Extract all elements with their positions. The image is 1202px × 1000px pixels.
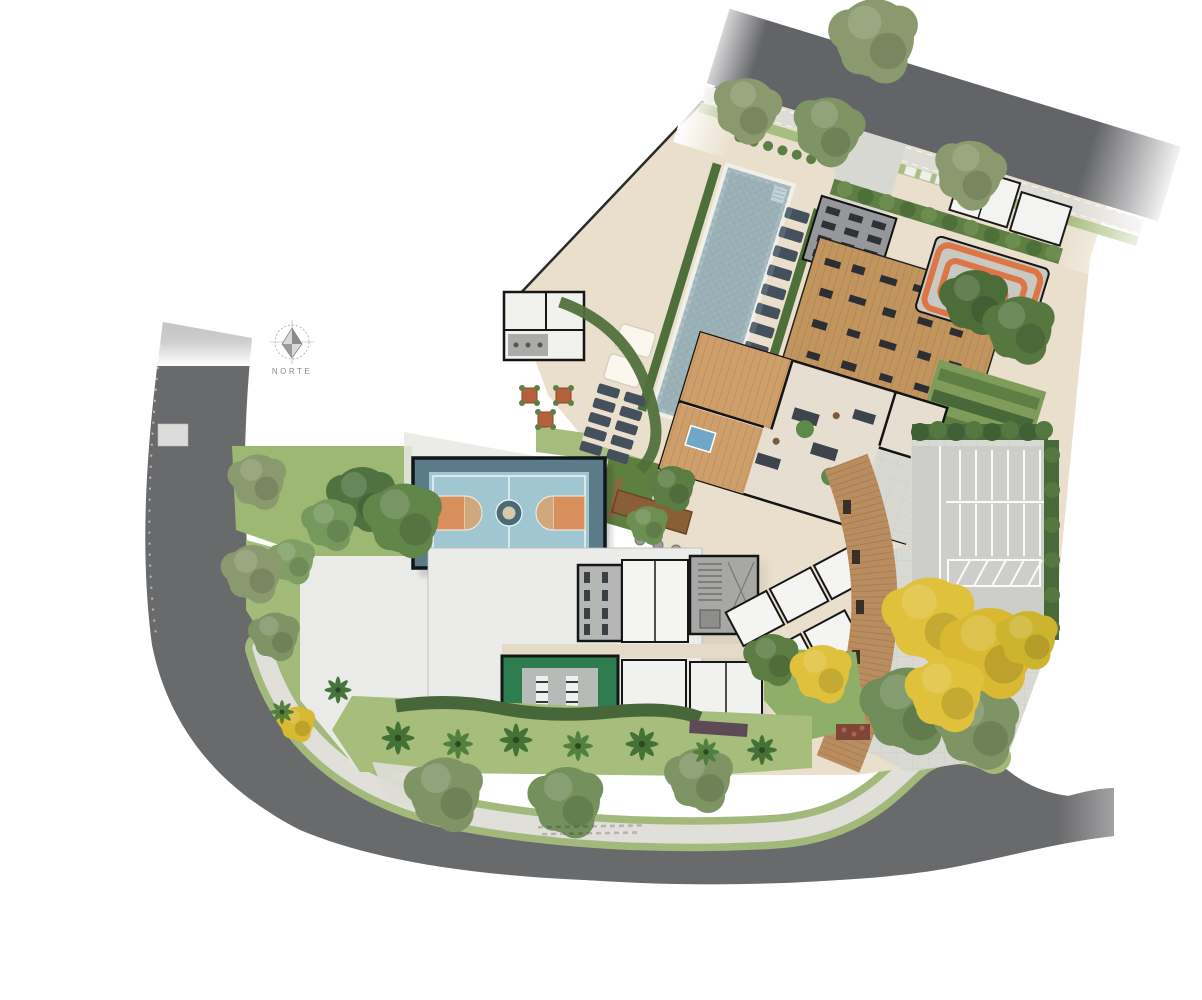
- site-plan-illustration: NORTE: [0, 0, 1202, 1000]
- road-fade-top2: [128, 285, 278, 343]
- court-key-right: [536, 496, 585, 530]
- road-fade-right: [1058, 745, 1202, 895]
- site-plan-canvas: NORTE: [0, 0, 1202, 1000]
- spin-room: [578, 565, 622, 641]
- compass-label: NORTE: [272, 367, 312, 376]
- bus-bay: [158, 424, 188, 446]
